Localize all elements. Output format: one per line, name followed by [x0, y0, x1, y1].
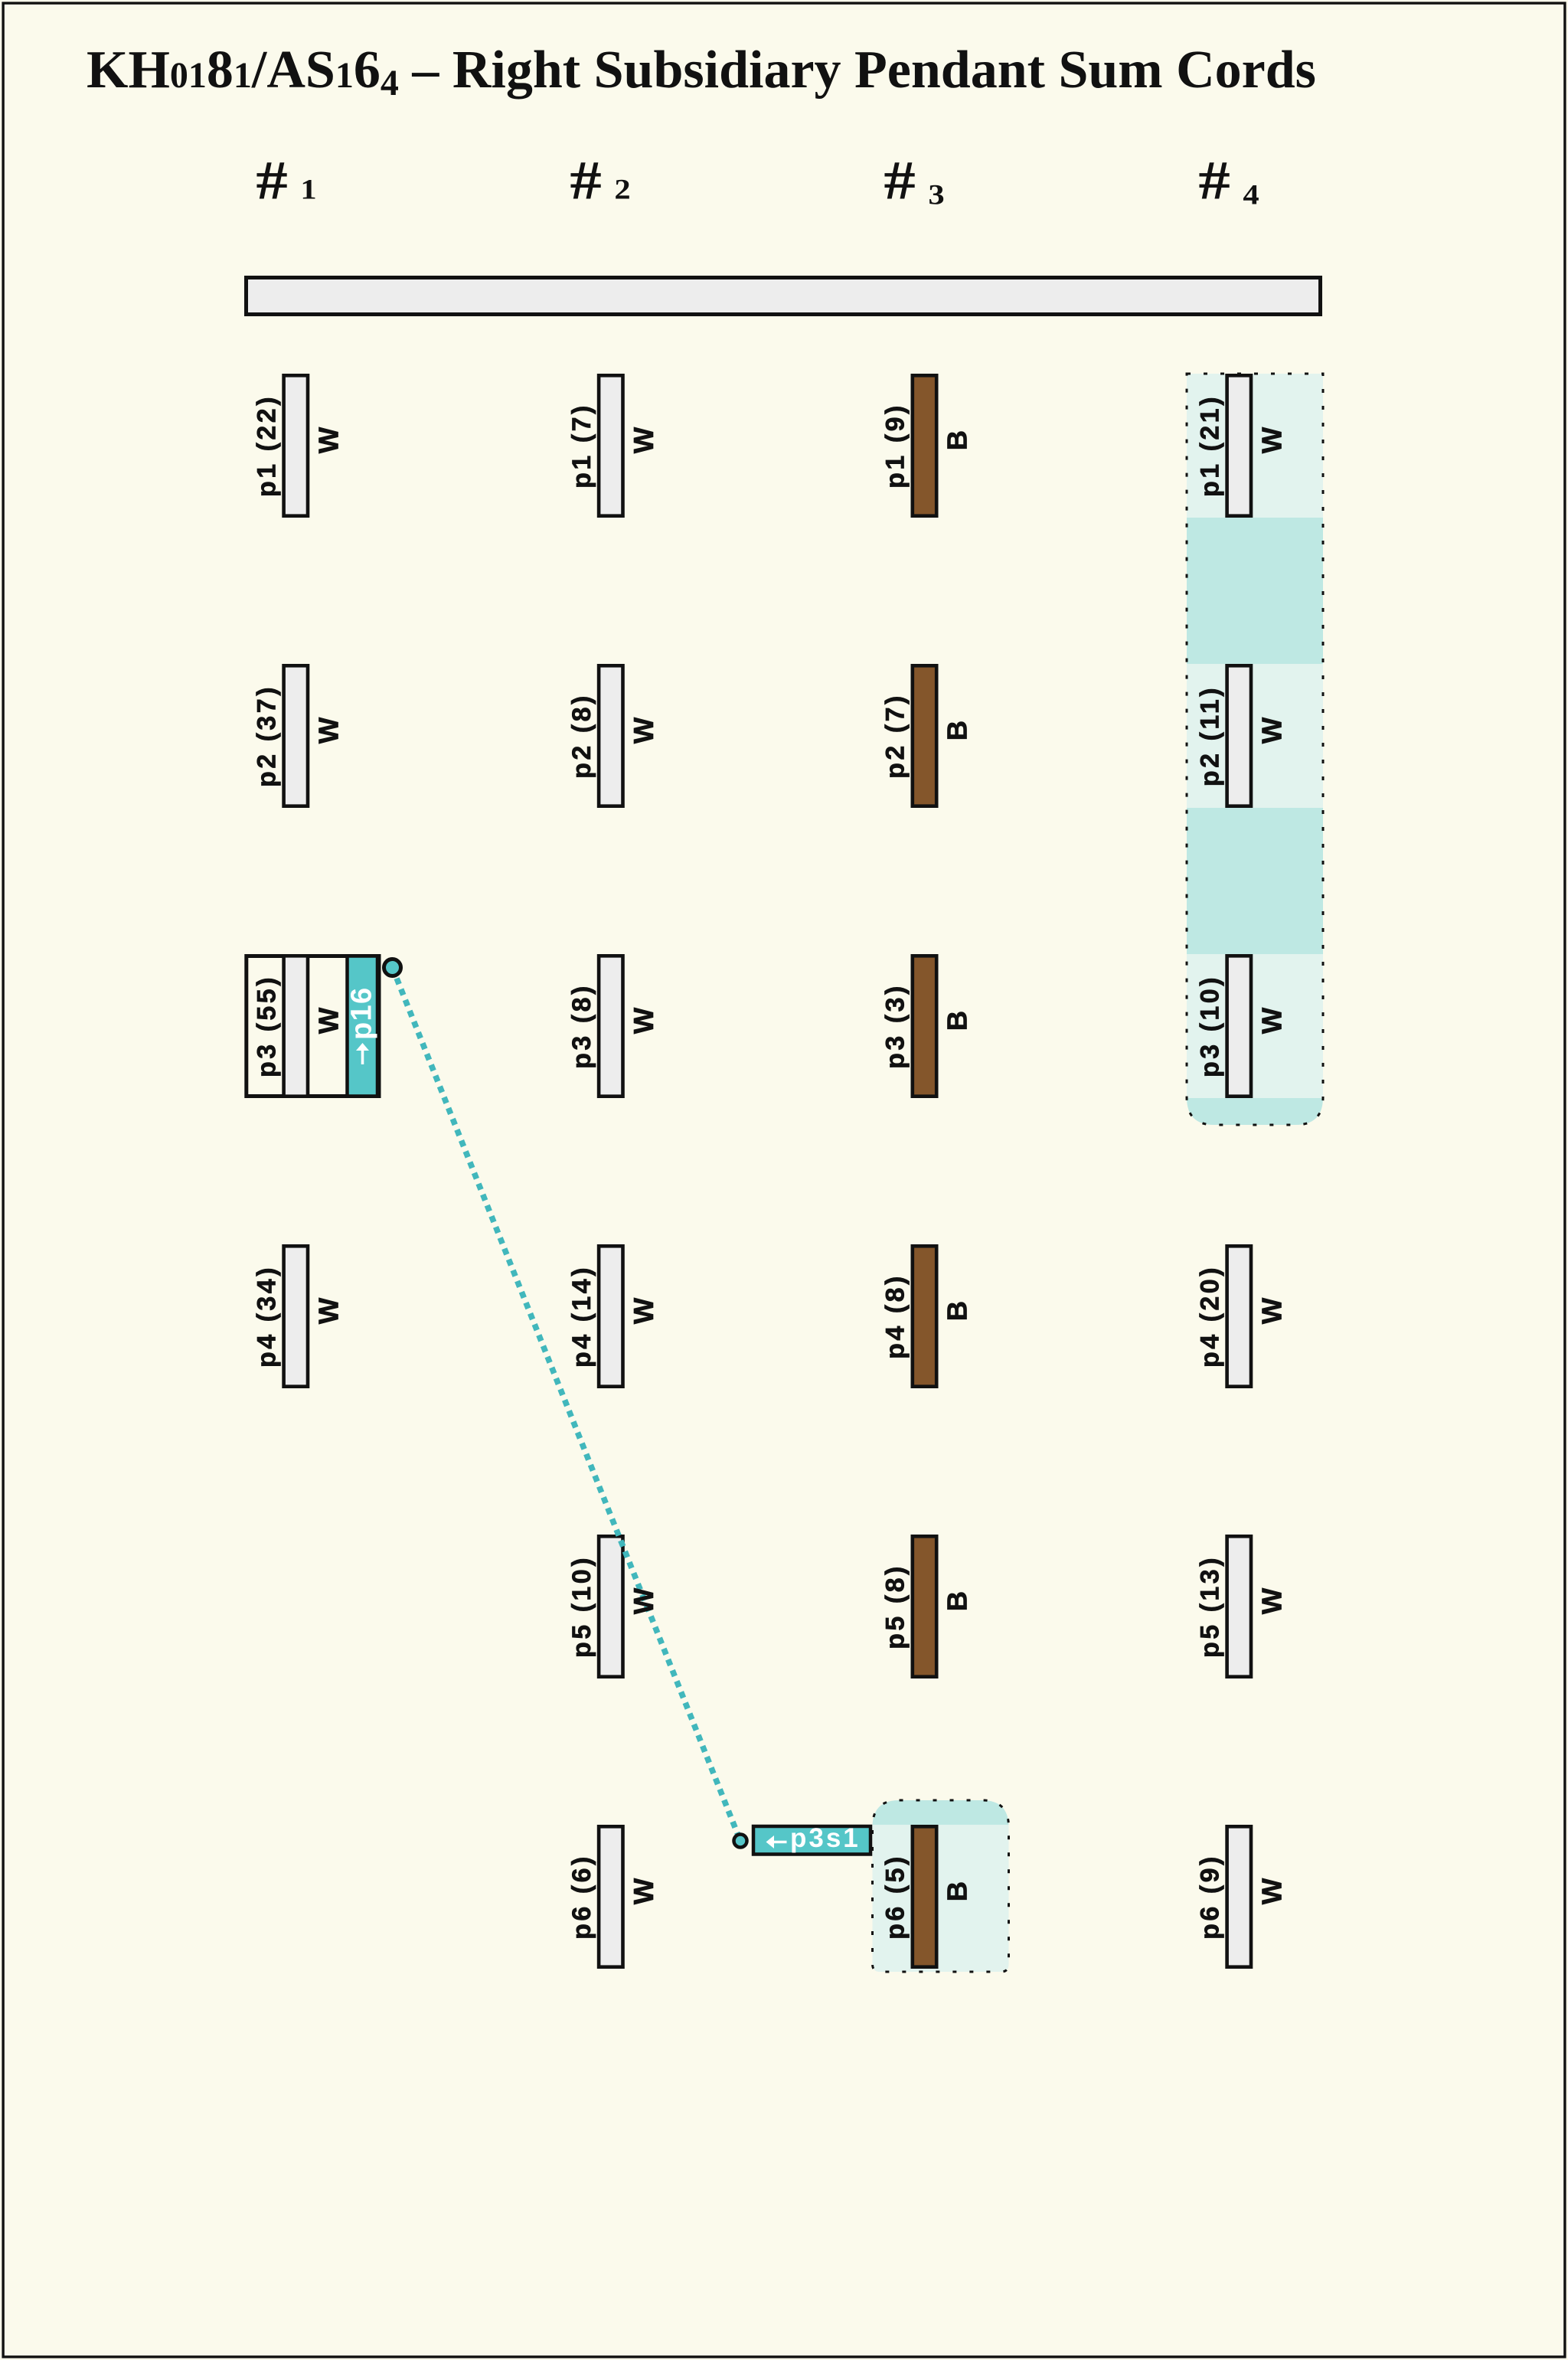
svg-text:B: B: [942, 721, 973, 740]
svg-text:p2 (11): p2 (11): [1195, 685, 1224, 786]
svg-text:W: W: [1256, 1587, 1287, 1614]
svg-text:W: W: [628, 1878, 659, 1904]
svg-text:B: B: [942, 1011, 973, 1031]
svg-text:p1 (21): p1 (21): [1195, 394, 1224, 497]
svg-text:p3s1: p3s1: [790, 1823, 861, 1853]
svg-text:p4 (34): p4 (34): [252, 1265, 281, 1368]
svg-text:W: W: [628, 427, 659, 453]
svg-text:B: B: [942, 1881, 973, 1901]
svg-text:W: W: [1256, 717, 1287, 744]
svg-text:W: W: [1256, 1878, 1287, 1904]
svg-text:W: W: [1256, 1007, 1287, 1034]
svg-text:p6 (5): p6 (5): [881, 1854, 910, 1940]
svg-text:B: B: [942, 1301, 973, 1321]
svg-text:KH0181/AS164 – Right Subsidiar: KH0181/AS164 – Right Subsidiary Pendant …: [87, 41, 1316, 103]
svg-text:p4 (20): p4 (20): [1195, 1265, 1224, 1368]
svg-text:p5 (13): p5 (13): [1195, 1555, 1224, 1658]
svg-text:W: W: [312, 717, 344, 744]
svg-text:W: W: [628, 1007, 659, 1034]
svg-text:p3 (8): p3 (8): [567, 983, 596, 1069]
svg-text:p2 (8): p2 (8): [567, 693, 596, 779]
svg-text:W: W: [628, 1587, 659, 1614]
svg-text:p2 (7): p2 (7): [881, 693, 910, 779]
svg-text:B: B: [942, 1591, 973, 1611]
svg-text:p3 (55): p3 (55): [252, 975, 281, 1077]
svg-text:W: W: [628, 1297, 659, 1324]
svg-text:B: B: [942, 430, 973, 450]
svg-text:W: W: [312, 1007, 344, 1034]
svg-text:W: W: [1256, 427, 1287, 453]
svg-text:p4 (14): p4 (14): [567, 1265, 596, 1368]
svg-text:p5 (10): p5 (10): [567, 1555, 596, 1658]
svg-text:p16: p16: [346, 987, 378, 1040]
svg-text:W: W: [628, 717, 659, 744]
svg-text:p1 (9): p1 (9): [881, 403, 910, 489]
svg-text:p3 (10): p3 (10): [1195, 975, 1224, 1077]
svg-text:p4 (8): p4 (8): [881, 1273, 910, 1359]
svg-text:W: W: [312, 1297, 344, 1324]
svg-text:p5 (8): p5 (8): [881, 1564, 910, 1649]
svg-text:p1 (22): p1 (22): [252, 394, 281, 497]
svg-text:W: W: [1256, 1297, 1287, 1324]
svg-text:p2 (37): p2 (37): [252, 685, 281, 787]
svg-text:p6 (9): p6 (9): [1195, 1854, 1224, 1940]
svg-text:p6 (6): p6 (6): [567, 1854, 596, 1940]
svg-text:W: W: [312, 427, 344, 453]
svg-text:p1 (7): p1 (7): [567, 403, 596, 489]
svg-text:p3 (3): p3 (3): [881, 983, 910, 1069]
